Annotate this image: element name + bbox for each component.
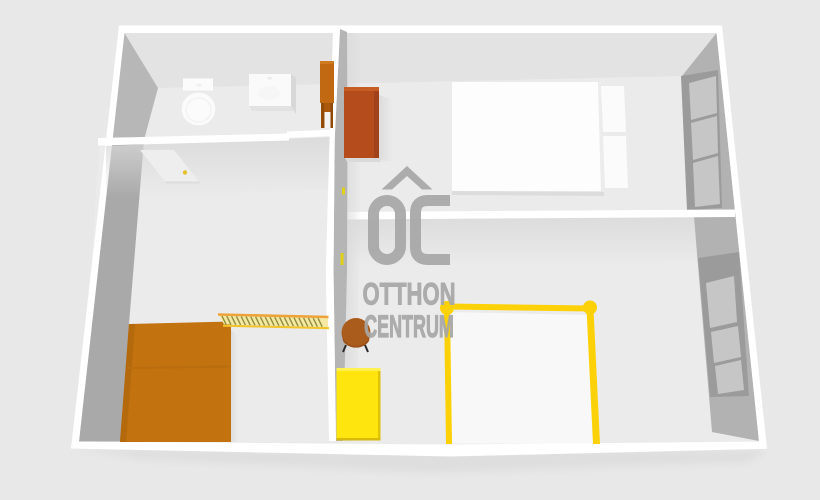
svg-text:CENTRUM: CENTRUM [364,310,454,344]
svg-text:OTTHON: OTTHON [362,276,455,312]
